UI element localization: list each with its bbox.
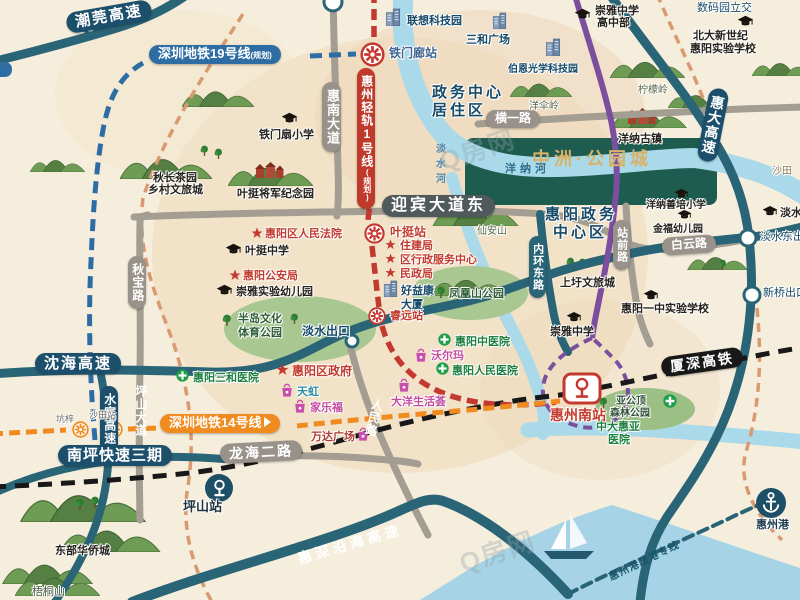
hospital-label-renmin: 惠阳人民医院 xyxy=(452,365,518,378)
exit-label-xinqiao: 新桥出口 xyxy=(763,287,800,300)
clipped-label-stub xyxy=(0,62,12,77)
metro-station-icon-kengzi xyxy=(73,422,88,437)
station-label-kengzi: 坑梓 xyxy=(56,414,74,424)
station-label-shatian: 沙田站 xyxy=(89,410,116,420)
hill-label-ningmengling: 柠檬岭 xyxy=(638,85,668,97)
station-label-tiemenlang: 铁门廊站 xyxy=(389,47,437,61)
area-label-qiuchang-2: 乡村文旅城 xyxy=(148,184,203,197)
lightrail-line1-label: 惠州轻轨1号线(规划) xyxy=(357,68,375,209)
hospital-label-zhongyi: 惠阳中医院 xyxy=(455,336,510,349)
danshui-east-exit-node xyxy=(740,230,756,246)
station-label-yeting: 叶挺站 xyxy=(390,226,426,240)
school-label-danshui: 淡水小学 xyxy=(780,207,800,220)
building-label-haoyikang-1: 好益康 xyxy=(401,285,434,298)
shop-label-woerma: 沃尔玛 xyxy=(431,350,464,363)
station-label-pingshan: 坪山站 xyxy=(183,500,222,515)
gov-label-minzheng: 民政局 xyxy=(400,268,433,281)
school-label-yangna: 洋纳善培小学 xyxy=(646,200,706,212)
hill-label-xiananshan: 仙安山 xyxy=(477,226,507,238)
area-label-dongbu: 东部华侨城 xyxy=(55,545,110,558)
park-label-bandao-1: 半岛文化 xyxy=(238,313,282,326)
road-label-pingshan-dadao: 坪山大道 xyxy=(131,378,149,444)
gov-label-fayuan: 惠阳区人民法院 xyxy=(265,228,342,241)
location-map: 中洲·公园城 潮莞高速 深圳地铁19号线(规划) 惠南大道 惠州轻轨1号线(规划… xyxy=(0,0,800,600)
metro-line14-label: 深圳地铁14号线 xyxy=(160,414,280,433)
road-label-yingbin: 迎宾大道东 xyxy=(382,195,495,217)
shop-label-jialefu: 家乐福 xyxy=(310,402,343,415)
area-label-guzhen: 洋纳古镇 xyxy=(618,133,662,146)
school-label-yizhong: 惠阳一中实验学校 xyxy=(621,303,709,316)
area-label-jinianyuan: 叶挺将军纪念园 xyxy=(237,188,314,201)
road-label-neihuan: 内环东路 xyxy=(529,236,546,298)
metro-station-icon-yeting xyxy=(365,224,383,242)
area-label-shangxu: 上圩文旅城 xyxy=(560,277,615,290)
place-label-shatian: 沙田 xyxy=(772,166,792,178)
building-label-haoyikang-2: 大厦 xyxy=(401,299,423,312)
xinqiao-exit-node xyxy=(744,287,760,303)
building-label-lianxiang: 联想科技园 xyxy=(407,15,462,28)
metro-line19-label: 深圳地铁19号线(规划) xyxy=(149,45,281,64)
school-label-beida-2: 惠阳实验学校 xyxy=(690,43,756,56)
area-label-juzhuqu-1: 政务中心 xyxy=(432,84,504,101)
gov-label-zhujianju: 住建局 xyxy=(400,240,433,253)
road-label-baiyun: 白云路 xyxy=(661,234,716,256)
building-label-sanhe-plaza: 三和广场 xyxy=(466,34,510,47)
station-label-ruiyuan: 睿远站 xyxy=(390,310,423,323)
school-icon-danshui xyxy=(763,206,778,215)
gov-label-fuwu: 区行政服务中心 xyxy=(400,254,477,267)
line14-arrow-icon xyxy=(264,417,271,427)
metro-station-icon-tiemenlang xyxy=(362,44,384,66)
interchange-label-shuma: 数码园立交 xyxy=(697,2,752,15)
map-canvas xyxy=(0,0,800,600)
hospital-icon-sanhe xyxy=(176,369,188,381)
school-label-chongya: 崇雅中学 xyxy=(550,326,594,339)
road-label-zhanqian: 站前路 xyxy=(613,220,630,270)
station-label-huizhougang: 惠州港 xyxy=(756,519,789,532)
school-label-chongya-high-2: 高中部 xyxy=(597,17,630,30)
area-label-qiuchang-1: 秋长茶园 xyxy=(153,172,197,185)
hospital-label-zhongda-1: 中大惠亚 xyxy=(596,421,640,434)
river-label-yangnahe: 洋纳河 xyxy=(505,163,550,176)
shop-label-dayang: 大洋生活荟 xyxy=(391,396,446,409)
school-icon-beida xyxy=(738,16,754,26)
park-label-yagongding-2: 森林公园 xyxy=(610,408,650,420)
exit-label-danshui: 淡水出口 xyxy=(302,325,350,339)
hill-label-yangsanling: 洋伞岭 xyxy=(529,101,559,113)
park-label-bandao-2: 体育公园 xyxy=(238,327,282,340)
hospital-icon-zhongyi xyxy=(438,333,450,345)
road-label-huinan: 惠南大道 xyxy=(322,82,341,152)
school-label-yeting: 叶挺中学 xyxy=(245,245,289,258)
gov-label-gonganju: 惠阳公安局 xyxy=(243,270,298,283)
hospital-label-zhongda-2: 医院 xyxy=(608,434,630,447)
exit-label-danshui-east: 淡水东出口 xyxy=(760,231,800,244)
road-label-shenhai: 沈海高速 xyxy=(35,353,121,374)
school-label-tiemenshan: 铁门扇小学 xyxy=(259,129,314,142)
area-label-zhengwu-1: 惠阳政务 xyxy=(545,206,617,223)
area-label-zhengwu-2: 中心区 xyxy=(553,224,607,241)
school-label-jinfu: 金福幼儿园 xyxy=(653,224,703,236)
road-label-nanping: 南坪快速三期 xyxy=(58,445,172,466)
park-label-fenghuangshan: 凤凰山公园 xyxy=(449,288,504,301)
area-label-juzhuqu-2: 居住区 xyxy=(432,102,486,119)
building-label-boen: 伯恩光学科技园 xyxy=(508,64,578,76)
park-label-yagongding-1: 亚公顶 xyxy=(616,396,646,408)
hospital-icon-zhongda xyxy=(663,394,676,407)
school-label-chongya-kid: 崇雅实验幼儿园 xyxy=(236,286,313,299)
hospital-label-sanhe: 惠阳三和医院 xyxy=(193,372,259,385)
hill-label-wutongshan: 梧桐山 xyxy=(32,586,65,599)
school-label-chongya-high-1: 崇雅中学 xyxy=(595,5,639,18)
hospital-icon-renmin xyxy=(436,362,448,374)
shop-label-tianhong: 天虹 xyxy=(297,386,319,399)
school-label-beida-1: 北大新世纪 xyxy=(693,30,748,43)
gov-label-quzhengfu: 惠阳区政府 xyxy=(292,365,352,379)
shop-label-wanda: 万达广场 xyxy=(311,431,355,444)
road-label-qiubao: 秋宝路 xyxy=(128,256,146,309)
metro-station-icon-ruiyuan xyxy=(369,308,385,324)
school-icon-yizhong xyxy=(644,290,659,299)
